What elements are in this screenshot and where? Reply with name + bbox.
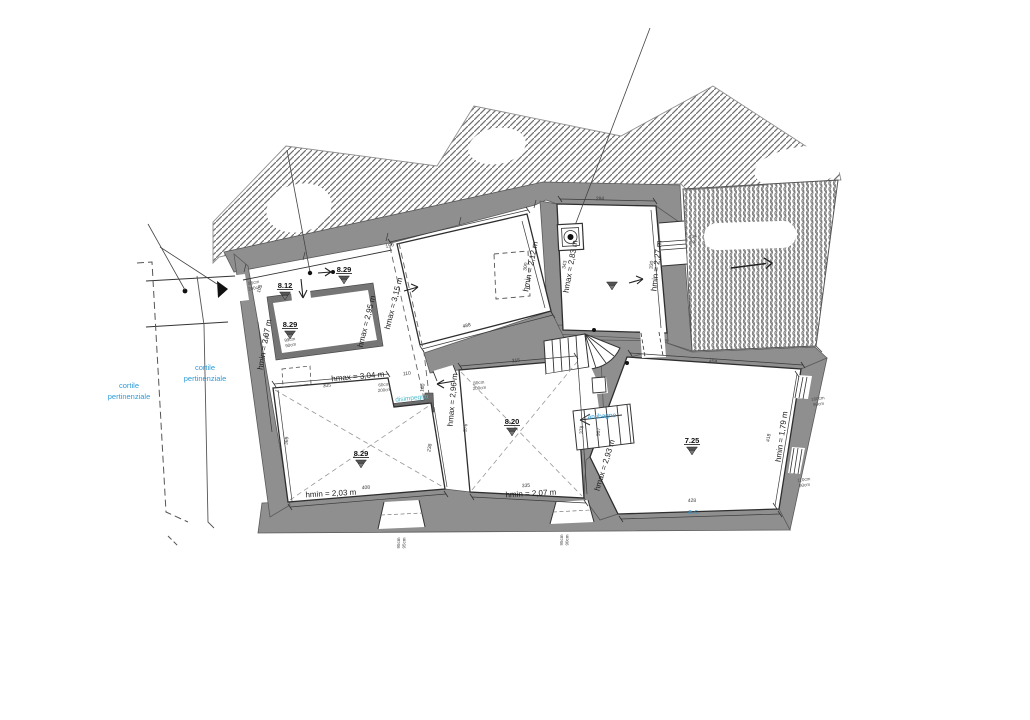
- svg-text:95cm: 95cm: [396, 537, 401, 548]
- svg-text:cortile: cortile: [119, 381, 139, 390]
- svg-text:7.25: 7.25: [685, 436, 700, 445]
- svg-text:95cm: 95cm: [402, 537, 407, 548]
- svg-text:110: 110: [403, 371, 412, 378]
- svg-text:8.29: 8.29: [337, 265, 352, 274]
- svg-text:428: 428: [688, 498, 697, 504]
- svg-text:284: 284: [596, 196, 605, 202]
- svg-text:8.29: 8.29: [354, 449, 369, 458]
- svg-text:376: 376: [463, 423, 470, 432]
- svg-text:330: 330: [649, 260, 656, 269]
- svg-text:90cm: 90cm: [565, 534, 570, 545]
- svg-text:369: 369: [284, 436, 291, 445]
- svg-text:408: 408: [362, 485, 371, 492]
- svg-text:a.c.: a.c.: [688, 507, 700, 516]
- svg-text:335: 335: [522, 483, 531, 489]
- svg-text:8.12: 8.12: [278, 281, 293, 290]
- svg-text:8.20: 8.20: [505, 417, 520, 426]
- svg-text:378: 378: [579, 425, 586, 434]
- svg-text:418: 418: [765, 433, 772, 442]
- svg-text:pertinenziale: pertinenziale: [184, 374, 227, 383]
- svg-text:459: 459: [709, 359, 718, 365]
- svg-text:pertinenziale: pertinenziale: [108, 392, 151, 401]
- svg-text:957: 957: [596, 427, 603, 436]
- svg-text:8.29: 8.29: [283, 320, 298, 329]
- svg-text:305: 305: [322, 383, 331, 390]
- svg-text:95cm: 95cm: [559, 534, 564, 545]
- svg-text:cortile: cortile: [195, 363, 215, 372]
- svg-text:315: 315: [511, 358, 520, 365]
